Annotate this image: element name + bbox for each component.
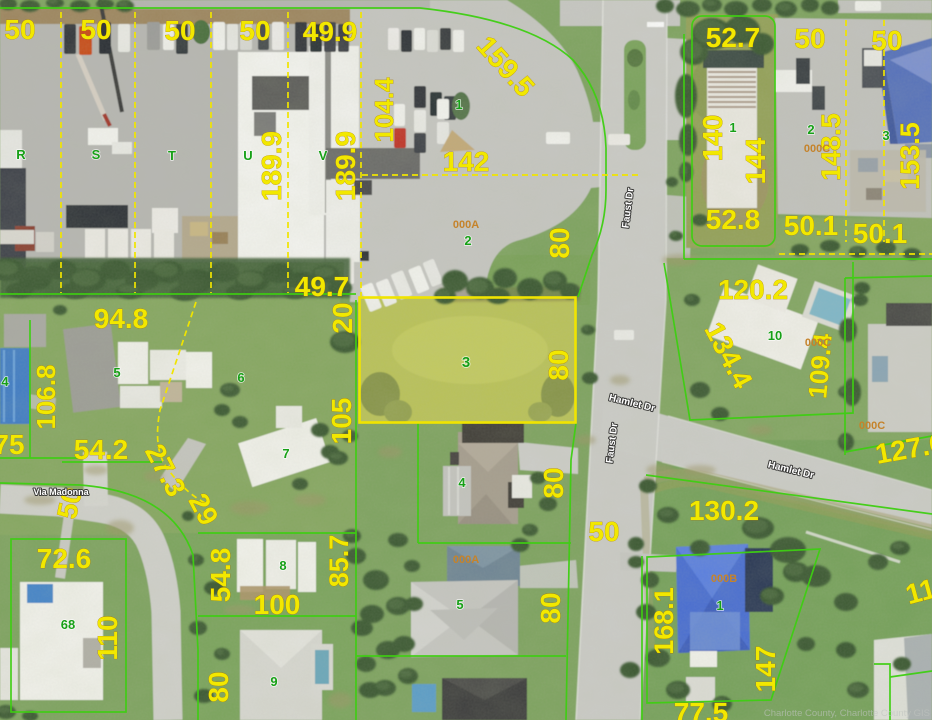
- svg-text:50: 50: [794, 23, 825, 54]
- svg-text:144: 144: [740, 137, 771, 184]
- svg-text:52.7: 52.7: [706, 22, 761, 53]
- svg-text:3: 3: [882, 128, 889, 143]
- svg-text:Via Madonna: Via Madonna: [33, 487, 89, 497]
- svg-text:153.5: 153.5: [895, 122, 925, 190]
- svg-text:168.1: 168.1: [649, 587, 679, 655]
- svg-text:R: R: [16, 147, 26, 162]
- svg-text:8: 8: [279, 558, 286, 573]
- svg-text:80: 80: [543, 349, 574, 380]
- svg-text:U: U: [243, 148, 252, 163]
- svg-text:9: 9: [270, 674, 277, 689]
- svg-text:Charlotte County, Charlotte Co: Charlotte County, Charlotte County GIS: [764, 708, 930, 719]
- svg-text:50: 50: [4, 14, 35, 45]
- svg-text:72.6: 72.6: [37, 543, 92, 574]
- svg-text:147: 147: [750, 646, 781, 693]
- svg-text:49.9: 49.9: [303, 16, 358, 47]
- svg-text:54.2: 54.2: [74, 434, 129, 465]
- svg-text:3: 3: [462, 354, 470, 371]
- svg-text:000C: 000C: [804, 143, 830, 155]
- svg-text:1: 1: [716, 598, 723, 613]
- svg-text:52.8: 52.8: [706, 204, 761, 235]
- svg-text:5: 5: [456, 597, 463, 612]
- svg-text:105: 105: [326, 398, 357, 445]
- svg-text:2: 2: [464, 233, 471, 248]
- svg-text:000A: 000A: [453, 554, 479, 566]
- svg-text:1: 1: [729, 120, 736, 135]
- svg-text:000C: 000C: [859, 420, 885, 432]
- svg-text:80: 80: [203, 671, 234, 702]
- svg-text:50: 50: [164, 15, 195, 46]
- svg-text:50: 50: [588, 516, 619, 547]
- svg-text:1: 1: [455, 97, 462, 112]
- svg-text:110: 110: [92, 615, 123, 660]
- svg-text:20: 20: [327, 302, 358, 333]
- svg-text:6: 6: [237, 370, 244, 385]
- svg-text:10: 10: [768, 328, 782, 343]
- svg-text:2: 2: [807, 122, 814, 137]
- svg-text:80: 80: [544, 227, 575, 258]
- svg-text:80: 80: [535, 592, 566, 623]
- svg-text:000A: 000A: [453, 219, 479, 231]
- svg-text:106.8: 106.8: [31, 364, 61, 429]
- svg-text:5: 5: [113, 365, 120, 380]
- svg-text:130.2: 130.2: [689, 495, 759, 526]
- svg-text:54.8: 54.8: [205, 548, 236, 603]
- svg-text:80: 80: [538, 467, 569, 498]
- svg-text:7: 7: [282, 446, 289, 461]
- svg-text:75: 75: [0, 429, 25, 460]
- svg-text:50.1: 50.1: [784, 210, 839, 241]
- svg-text:189.9: 189.9: [256, 131, 287, 201]
- svg-text:100: 100: [254, 589, 301, 620]
- svg-text:104.4: 104.4: [369, 77, 399, 143]
- svg-text:142: 142: [443, 146, 490, 177]
- svg-text:000C: 000C: [805, 337, 831, 349]
- svg-text:140: 140: [697, 115, 728, 162]
- svg-text:S: S: [92, 147, 101, 162]
- svg-text:50: 50: [239, 15, 270, 46]
- svg-text:50: 50: [871, 25, 902, 56]
- svg-text:68: 68: [61, 617, 75, 632]
- svg-text:85.7: 85.7: [324, 535, 354, 588]
- svg-text:4: 4: [1, 374, 9, 389]
- svg-text:V: V: [319, 148, 328, 163]
- svg-text:50: 50: [80, 14, 111, 45]
- svg-text:94.8: 94.8: [94, 303, 149, 334]
- svg-text:T: T: [168, 148, 176, 163]
- svg-text:120.2: 120.2: [718, 274, 788, 305]
- svg-text:000B: 000B: [711, 573, 737, 585]
- svg-text:4: 4: [458, 475, 466, 490]
- svg-text:49.7: 49.7: [295, 271, 350, 302]
- svg-text:50.1: 50.1: [853, 218, 908, 249]
- svg-text:77.5: 77.5: [674, 697, 729, 720]
- svg-text:189.9: 189.9: [330, 131, 361, 201]
